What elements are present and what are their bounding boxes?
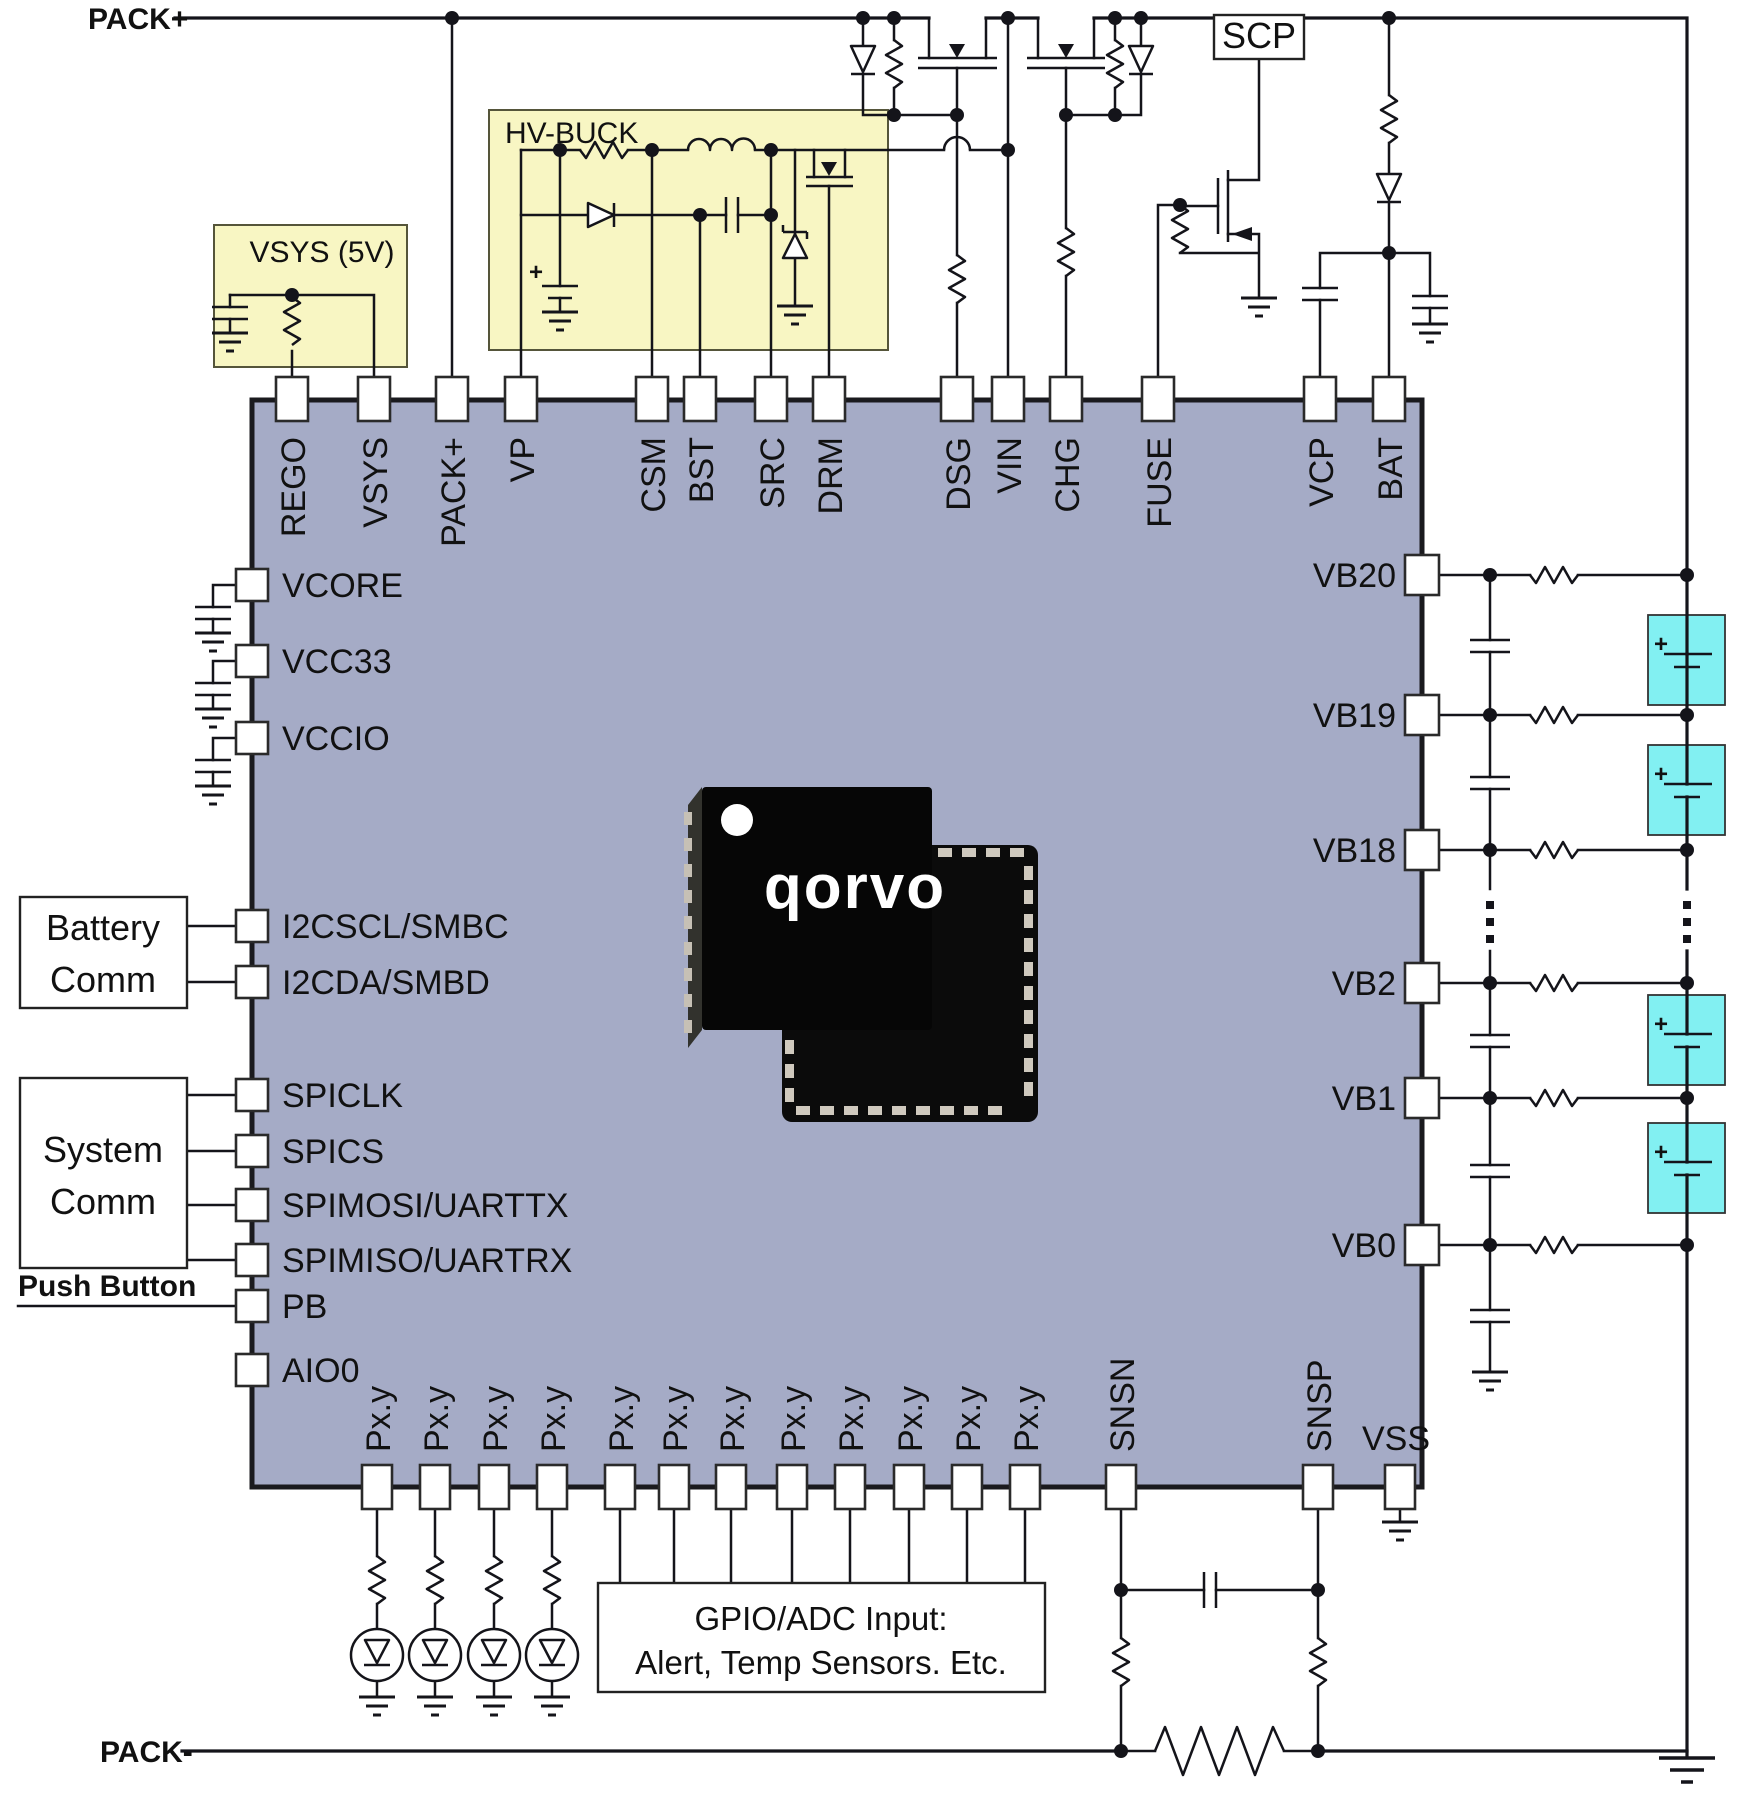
diode-icon <box>851 46 875 72</box>
ground-icon <box>1382 1522 1418 1540</box>
pin-label-VCC33: VCC33 <box>282 643 392 681</box>
pin-VB0 <box>1405 1225 1439 1265</box>
resistor-icon <box>886 40 902 88</box>
ground-icon <box>534 1697 570 1715</box>
qfn-pins-front-edge <box>684 812 692 1033</box>
pin-AIO0 <box>236 1354 268 1386</box>
pin-label-BST: BST <box>683 437 721 503</box>
pin-label-DSG: DSG <box>940 437 978 511</box>
pin-Pxy-2 <box>420 1465 450 1509</box>
pin-VCORE <box>236 569 268 601</box>
pin-REGO <box>276 377 308 421</box>
polarity-plus: + <box>1654 631 1668 658</box>
fet-arrow-icon <box>1058 44 1074 58</box>
ground-icon <box>1241 298 1277 316</box>
capacitor-icon <box>195 683 231 695</box>
system-comm-line2: Comm <box>50 1181 156 1222</box>
pin-SRC <box>755 377 787 421</box>
circuit-schematic: + <box>0 0 1746 1802</box>
polarity-plus: + <box>1654 1139 1668 1166</box>
pin-PACKP <box>436 377 468 421</box>
capacitor-icon <box>1412 296 1448 308</box>
pin-label-Pxy: Px.y <box>657 1386 695 1452</box>
ground-icon <box>417 1697 453 1715</box>
pin-label-PB: PB <box>282 1288 327 1326</box>
ground-icon <box>1659 1758 1715 1782</box>
pack-minus-label: PACK- <box>100 1736 193 1769</box>
pin-label-VB1: VB1 <box>1332 1080 1396 1118</box>
polarity-plus: + <box>1654 1011 1668 1038</box>
system-comm-line1: System <box>43 1129 163 1170</box>
pin-CHG <box>1050 377 1082 421</box>
led-chains <box>351 1509 578 1715</box>
ground-icon <box>1472 1372 1508 1390</box>
pin-BST <box>684 377 716 421</box>
pin-Pxy-10 <box>894 1465 924 1509</box>
pin-label-FUSE: FUSE <box>1141 437 1179 528</box>
pin-VSS <box>1385 1465 1415 1509</box>
pin-I2CSCL <box>236 910 268 942</box>
polarity-plus: + <box>529 259 543 286</box>
pin-Pxy-3 <box>479 1465 509 1509</box>
resistor-icon <box>1107 40 1123 88</box>
pin-label-VIN: VIN <box>991 437 1029 494</box>
pin-I2CDA <box>236 966 268 998</box>
pin-BAT <box>1373 377 1405 421</box>
fet-arrow-icon <box>949 44 965 58</box>
pin-label-Pxy: Px.y <box>360 1386 398 1452</box>
capacitor-icon <box>195 760 231 772</box>
pin-label-VCCIO: VCCIO <box>282 720 390 758</box>
push-button-label: Push Button <box>18 1270 196 1303</box>
pin-label-Pxy: Px.y <box>714 1386 752 1452</box>
pin-VCP <box>1304 377 1336 421</box>
pin-label-Pxy: Px.y <box>833 1386 871 1452</box>
pin-label-SPIMISO: SPIMISO/UARTRX <box>282 1242 572 1280</box>
vcc33-cap <box>195 661 236 727</box>
ground-icon <box>195 633 231 651</box>
scp-fuse-circuit <box>1158 58 1277 377</box>
pin-label-SNSN: SNSN <box>1104 1358 1142 1452</box>
ground-icon <box>195 709 231 727</box>
capacitor-icon <box>195 607 231 619</box>
polarity-plus: + <box>1654 761 1668 788</box>
ground-icon <box>195 786 231 804</box>
pin-VB18 <box>1405 830 1439 870</box>
pin-label-CHG: CHG <box>1049 437 1087 513</box>
pin-VB19 <box>1405 695 1439 735</box>
pin-label-Pxy: Px.y <box>950 1386 988 1452</box>
resistor-icon <box>1310 1638 1326 1686</box>
pin-Pxy-7 <box>716 1465 746 1509</box>
pin-Pxy-8 <box>777 1465 807 1509</box>
resistor-icon <box>1113 1638 1129 1686</box>
pin-label-SPICS: SPICS <box>282 1133 384 1171</box>
pin-Pxy-11 <box>952 1465 982 1509</box>
schematic-page: + <box>0 0 1746 1802</box>
pin-SPIMOSI <box>236 1189 268 1221</box>
resistor-icon <box>1381 95 1397 143</box>
pin-label-VSS: VSS <box>1362 1420 1430 1458</box>
pin-label-I2CDA: I2CDA/SMBD <box>282 964 490 1002</box>
pack-plus-label: PACK+ <box>88 3 188 36</box>
led-icon <box>526 1629 578 1681</box>
pin-label-VSYS: VSYS <box>357 437 395 528</box>
pin-VB20 <box>1405 555 1439 595</box>
pin-SPICLK <box>236 1079 268 1111</box>
scp-label: SCP <box>1222 15 1296 56</box>
pin-label-Pxy: Px.y <box>775 1386 813 1452</box>
ground-icon <box>1412 324 1448 342</box>
pin-VCCIO <box>236 722 268 754</box>
pin-label-VB2: VB2 <box>1332 965 1396 1003</box>
pin-SNSN <box>1106 1465 1136 1509</box>
diode-icon <box>1129 46 1153 72</box>
gpio-adc-line2: Alert, Temp Sensors. Etc. <box>635 1644 1007 1681</box>
pin-FUSE <box>1142 377 1174 421</box>
pin-label-Pxy: Px.y <box>535 1386 573 1452</box>
pin-VCC33 <box>236 645 268 677</box>
vcp-capacitor-icon <box>1302 288 1338 300</box>
pin-VB2 <box>1405 963 1439 1003</box>
pin-DSG <box>941 377 973 421</box>
pin-label-VB19: VB19 <box>1313 697 1396 735</box>
led-icon <box>468 1629 520 1681</box>
pin-label-SPICLK: SPICLK <box>282 1077 403 1115</box>
pin-SPICS <box>236 1135 268 1167</box>
current-sense-circuit <box>1113 1509 1326 1775</box>
diode-icon <box>1377 174 1401 200</box>
vccio-cap <box>195 738 236 804</box>
pin-Pxy-12 <box>1010 1465 1040 1509</box>
charge-fet <box>1027 18 1153 377</box>
fuse-gate-resistor-icon <box>1172 205 1188 253</box>
ground-icon <box>476 1697 512 1715</box>
pin-label-AIO0: AIO0 <box>282 1352 359 1390</box>
pin-label-DRM: DRM <box>812 437 850 514</box>
pin-VP <box>505 377 537 421</box>
pin-SPIMISO <box>236 1244 268 1276</box>
pack-minus-rail <box>182 1751 1715 1782</box>
pin-CSM <box>636 377 668 421</box>
ground-icon <box>359 1697 395 1715</box>
pin-SNSP <box>1303 1465 1333 1509</box>
pin-label-VB0: VB0 <box>1332 1227 1396 1265</box>
vsys-module-title: VSYS (5V) <box>249 236 394 269</box>
pin-label-VCP: VCP <box>1303 437 1341 507</box>
dsg-gate-resistor-icon <box>949 255 965 303</box>
pin-label-VB20: VB20 <box>1313 557 1396 595</box>
pin-label-CSM: CSM <box>635 437 673 513</box>
pin-label-BAT: BAT <box>1372 437 1410 501</box>
pin1-dot-icon <box>721 804 753 836</box>
shunt-resistor-icon <box>1155 1727 1284 1775</box>
pin-label-VP: VP <box>504 437 542 482</box>
hv-buck-module-title: HV-BUCK <box>505 117 638 150</box>
pin-label-Pxy: Px.y <box>603 1386 641 1452</box>
led-icon <box>351 1629 403 1681</box>
pin-label-PACKP: PACK+ <box>435 437 473 547</box>
pin-label-SPIMOSI: SPIMOSI/UARTTX <box>282 1187 569 1225</box>
fet-arrow-icon <box>1232 227 1252 241</box>
sense-filter-capacitor-icon <box>1204 1572 1216 1608</box>
pin-VIN <box>992 377 1024 421</box>
led-icon <box>409 1629 461 1681</box>
system-comm-box <box>20 1078 187 1268</box>
pin-label-SRC: SRC <box>754 437 792 509</box>
pin-Pxy-9 <box>835 1465 865 1509</box>
pin-PB <box>236 1290 268 1322</box>
vss-ground <box>1382 1509 1418 1540</box>
pin-label-VCORE: VCORE <box>282 567 403 605</box>
pin-label-Pxy: Px.y <box>892 1386 930 1452</box>
chg-gate-resistor-icon <box>1058 228 1074 276</box>
bat-vcp-branch <box>1302 18 1448 377</box>
pin-Pxy-6 <box>659 1465 689 1509</box>
gpio-wires <box>620 1509 1025 1583</box>
pin-Pxy-4 <box>537 1465 567 1509</box>
pin-label-SNSP: SNSP <box>1301 1359 1339 1452</box>
pin-DRM <box>813 377 845 421</box>
pin-label-REGO: REGO <box>275 437 313 537</box>
pin-Pxy-1 <box>362 1465 392 1509</box>
pin-VSYS <box>358 377 390 421</box>
pin-label-Pxy: Px.y <box>477 1386 515 1452</box>
pin-label-I2CSCL: I2CSCL/SMBC <box>282 908 509 946</box>
pin-label-Pxy: Px.y <box>1008 1386 1046 1452</box>
pin-VB1 <box>1405 1078 1439 1118</box>
pin-Pxy-5 <box>605 1465 635 1509</box>
battery-comm-line2: Comm <box>50 959 156 1000</box>
qorvo-brand-text: Qorvo <box>764 853 946 922</box>
vcore-cap <box>195 585 236 651</box>
pin-label-Pxy: Px.y <box>418 1386 456 1452</box>
stack-ellipsis-icon <box>1486 901 1691 943</box>
gpio-adc-line1: GPIO/ADC Input: <box>694 1600 947 1637</box>
pin-label-VB18: VB18 <box>1313 832 1396 870</box>
battery-comm-line1: Battery <box>46 907 160 948</box>
